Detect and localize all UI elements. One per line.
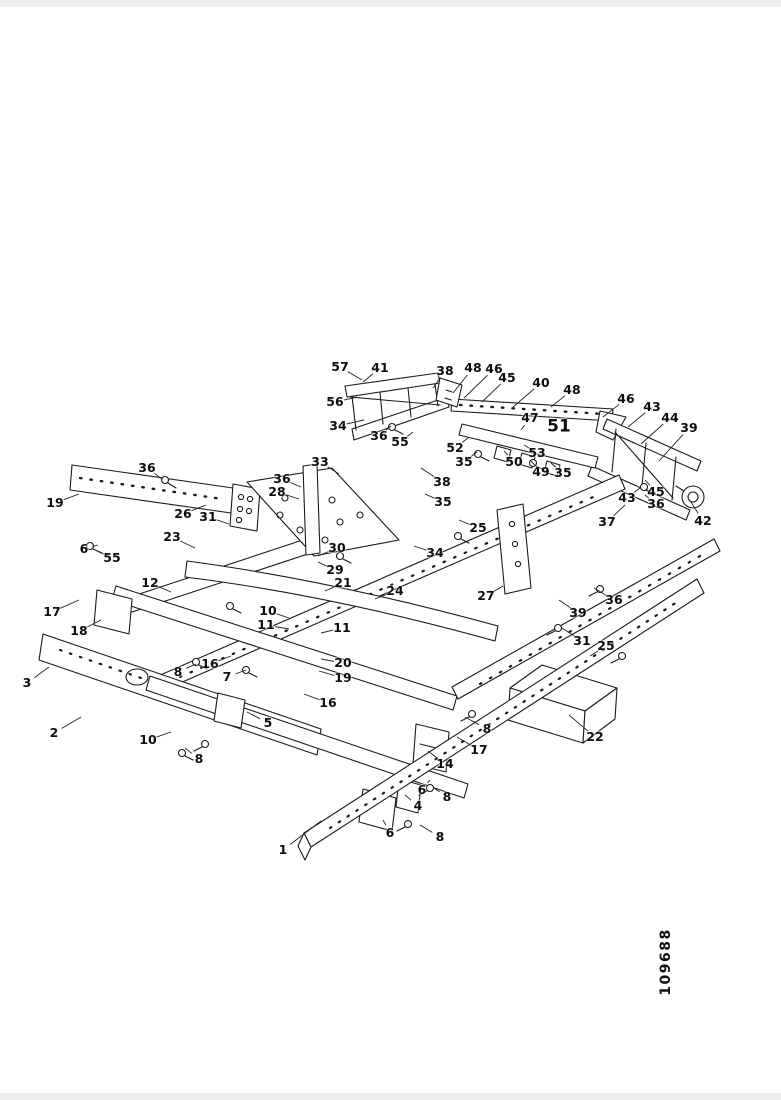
center-plate-bracket: [247, 464, 399, 556]
bolt-icon: [475, 451, 490, 462]
rear-truss-assembly: [345, 373, 462, 440]
right-rail: [452, 539, 720, 699]
bolt-icon: [455, 533, 470, 544]
bolt-icon: [397, 821, 412, 832]
figure-number: 109688: [658, 928, 674, 995]
bolt-icon: [87, 543, 103, 554]
bolt-icon: [611, 653, 626, 664]
main-rail-1: [298, 579, 704, 860]
bolt-icon: [243, 667, 258, 678]
right-truss-assembly: [588, 411, 704, 520]
bolt-icon: [461, 711, 476, 722]
left-beam-19: [70, 465, 260, 531]
parts-diagram-page: 5741384846454048464344395634365552354751…: [0, 0, 781, 1100]
rear-cross-beam: [451, 399, 613, 421]
bolt-icon: [227, 603, 242, 614]
bolt-icon: [194, 741, 209, 752]
rear-inner-beam: [459, 424, 598, 476]
bolt-icon: [179, 750, 194, 761]
bolt-icon: [337, 553, 352, 564]
bolt-icon: [589, 586, 604, 597]
